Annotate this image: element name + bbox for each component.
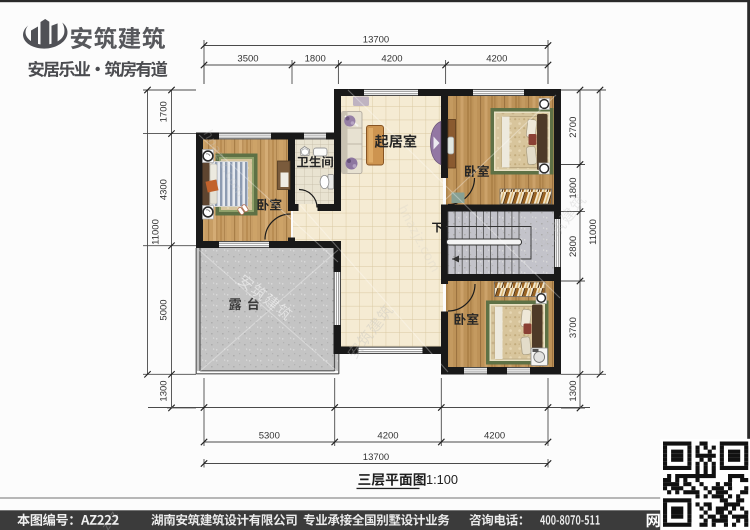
svg-text:2700: 2700 bbox=[568, 117, 579, 138]
svg-text:3500: 3500 bbox=[237, 54, 258, 65]
svg-text:4300: 4300 bbox=[159, 179, 170, 200]
svg-text:4200: 4200 bbox=[377, 431, 398, 442]
svg-text:1700: 1700 bbox=[159, 101, 170, 122]
svg-text:11000: 11000 bbox=[151, 219, 162, 245]
svg-text:11000: 11000 bbox=[588, 219, 599, 245]
svg-text:4200: 4200 bbox=[486, 54, 507, 65]
svg-text:5000: 5000 bbox=[159, 299, 170, 320]
svg-text:1:100: 1:100 bbox=[426, 472, 458, 487]
svg-text:13700: 13700 bbox=[363, 452, 389, 463]
svg-text:2800: 2800 bbox=[568, 236, 579, 257]
svg-text:3700: 3700 bbox=[568, 317, 579, 338]
svg-text:13700: 13700 bbox=[363, 35, 389, 46]
svg-text:1800: 1800 bbox=[305, 54, 326, 65]
svg-text:1300: 1300 bbox=[568, 380, 579, 401]
svg-text:4200: 4200 bbox=[381, 54, 402, 65]
svg-text:4200: 4200 bbox=[484, 431, 505, 442]
svg-text:5300: 5300 bbox=[259, 431, 280, 442]
svg-text:1300: 1300 bbox=[159, 380, 170, 401]
